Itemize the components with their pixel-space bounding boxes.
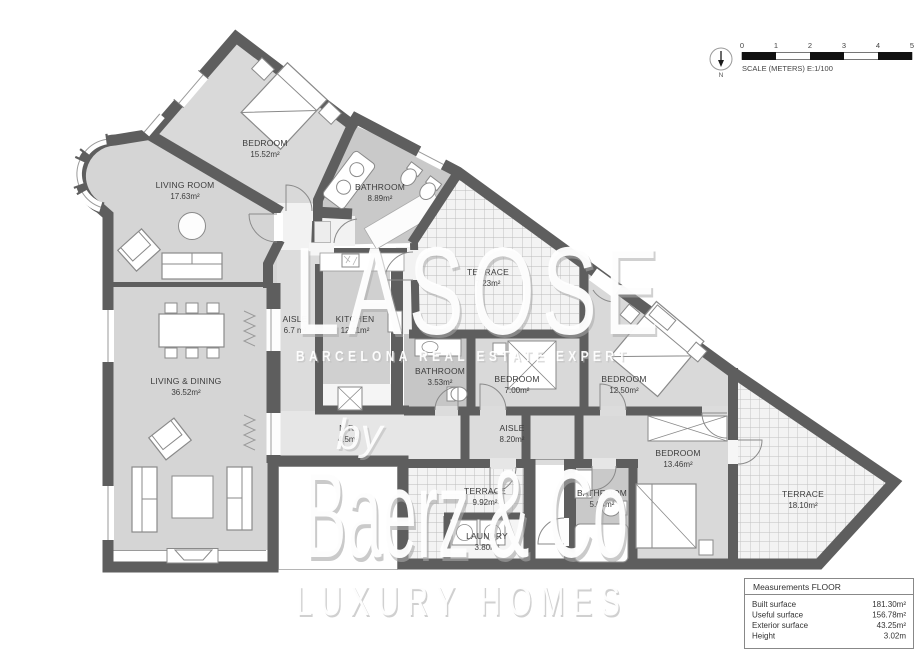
svg-text:LIVING & DINING: LIVING & DINING: [150, 376, 221, 386]
svg-text:15.52m²: 15.52m²: [250, 150, 280, 159]
svg-text:156.78m²: 156.78m²: [872, 611, 906, 620]
svg-text:8.89m²: 8.89m²: [368, 194, 393, 203]
svg-text:Useful surface: Useful surface: [752, 611, 804, 620]
svg-text:BEDROOM: BEDROOM: [242, 138, 287, 148]
svg-text:2: 2: [808, 41, 812, 50]
svg-text:AISLE: AISLE: [499, 423, 524, 433]
svg-text:5: 5: [910, 41, 914, 50]
svg-text:BEDROOM: BEDROOM: [601, 374, 646, 384]
svg-text:18.10m²: 18.10m²: [788, 501, 818, 510]
svg-text:BATHROOM: BATHROOM: [355, 182, 405, 192]
svg-text:BARCELONA REAL ESTATE EXPERT: BARCELONA REAL ESTATE EXPERT: [296, 348, 630, 365]
svg-text:12.50m²: 12.50m²: [609, 386, 639, 395]
svg-text:Measurements FLOOR: Measurements FLOOR: [753, 582, 841, 592]
svg-text:N: N: [719, 72, 724, 79]
svg-text:0: 0: [740, 41, 744, 50]
svg-text:1: 1: [774, 41, 778, 50]
svg-text:LIVING ROOM: LIVING ROOM: [156, 180, 215, 190]
svg-text:SCALE (METERS) E:1/100: SCALE (METERS) E:1/100: [742, 64, 833, 73]
svg-text:13.46m²: 13.46m²: [663, 460, 693, 469]
svg-text:36.52m²: 36.52m²: [171, 388, 201, 397]
svg-text:Height: Height: [752, 632, 776, 641]
svg-text:BATHROOM: BATHROOM: [415, 366, 465, 376]
svg-text:4: 4: [876, 41, 880, 50]
svg-text:3: 3: [842, 41, 846, 50]
svg-text:TERRACE: TERRACE: [782, 489, 824, 499]
svg-text:7.00m²: 7.00m²: [505, 386, 530, 395]
svg-text:BEDROOM: BEDROOM: [494, 374, 539, 384]
svg-text:3.53m²: 3.53m²: [428, 378, 453, 387]
svg-text:Built surface: Built surface: [752, 600, 797, 609]
svg-text:181.30m²: 181.30m²: [872, 600, 906, 609]
svg-text:LUXURY HOMES: LUXURY HOMES: [296, 577, 628, 625]
svg-text:BEDROOM: BEDROOM: [655, 448, 700, 458]
svg-text:Exterior surface: Exterior surface: [752, 621, 809, 630]
svg-text:Baerz & Co: Baerz & Co: [304, 443, 628, 583]
svg-text:43.25m²: 43.25m²: [877, 621, 907, 630]
svg-text:3.02m: 3.02m: [884, 632, 907, 641]
svg-text:LASOSE: LASOSE: [294, 223, 666, 361]
svg-text:17.63m²: 17.63m²: [170, 192, 200, 201]
